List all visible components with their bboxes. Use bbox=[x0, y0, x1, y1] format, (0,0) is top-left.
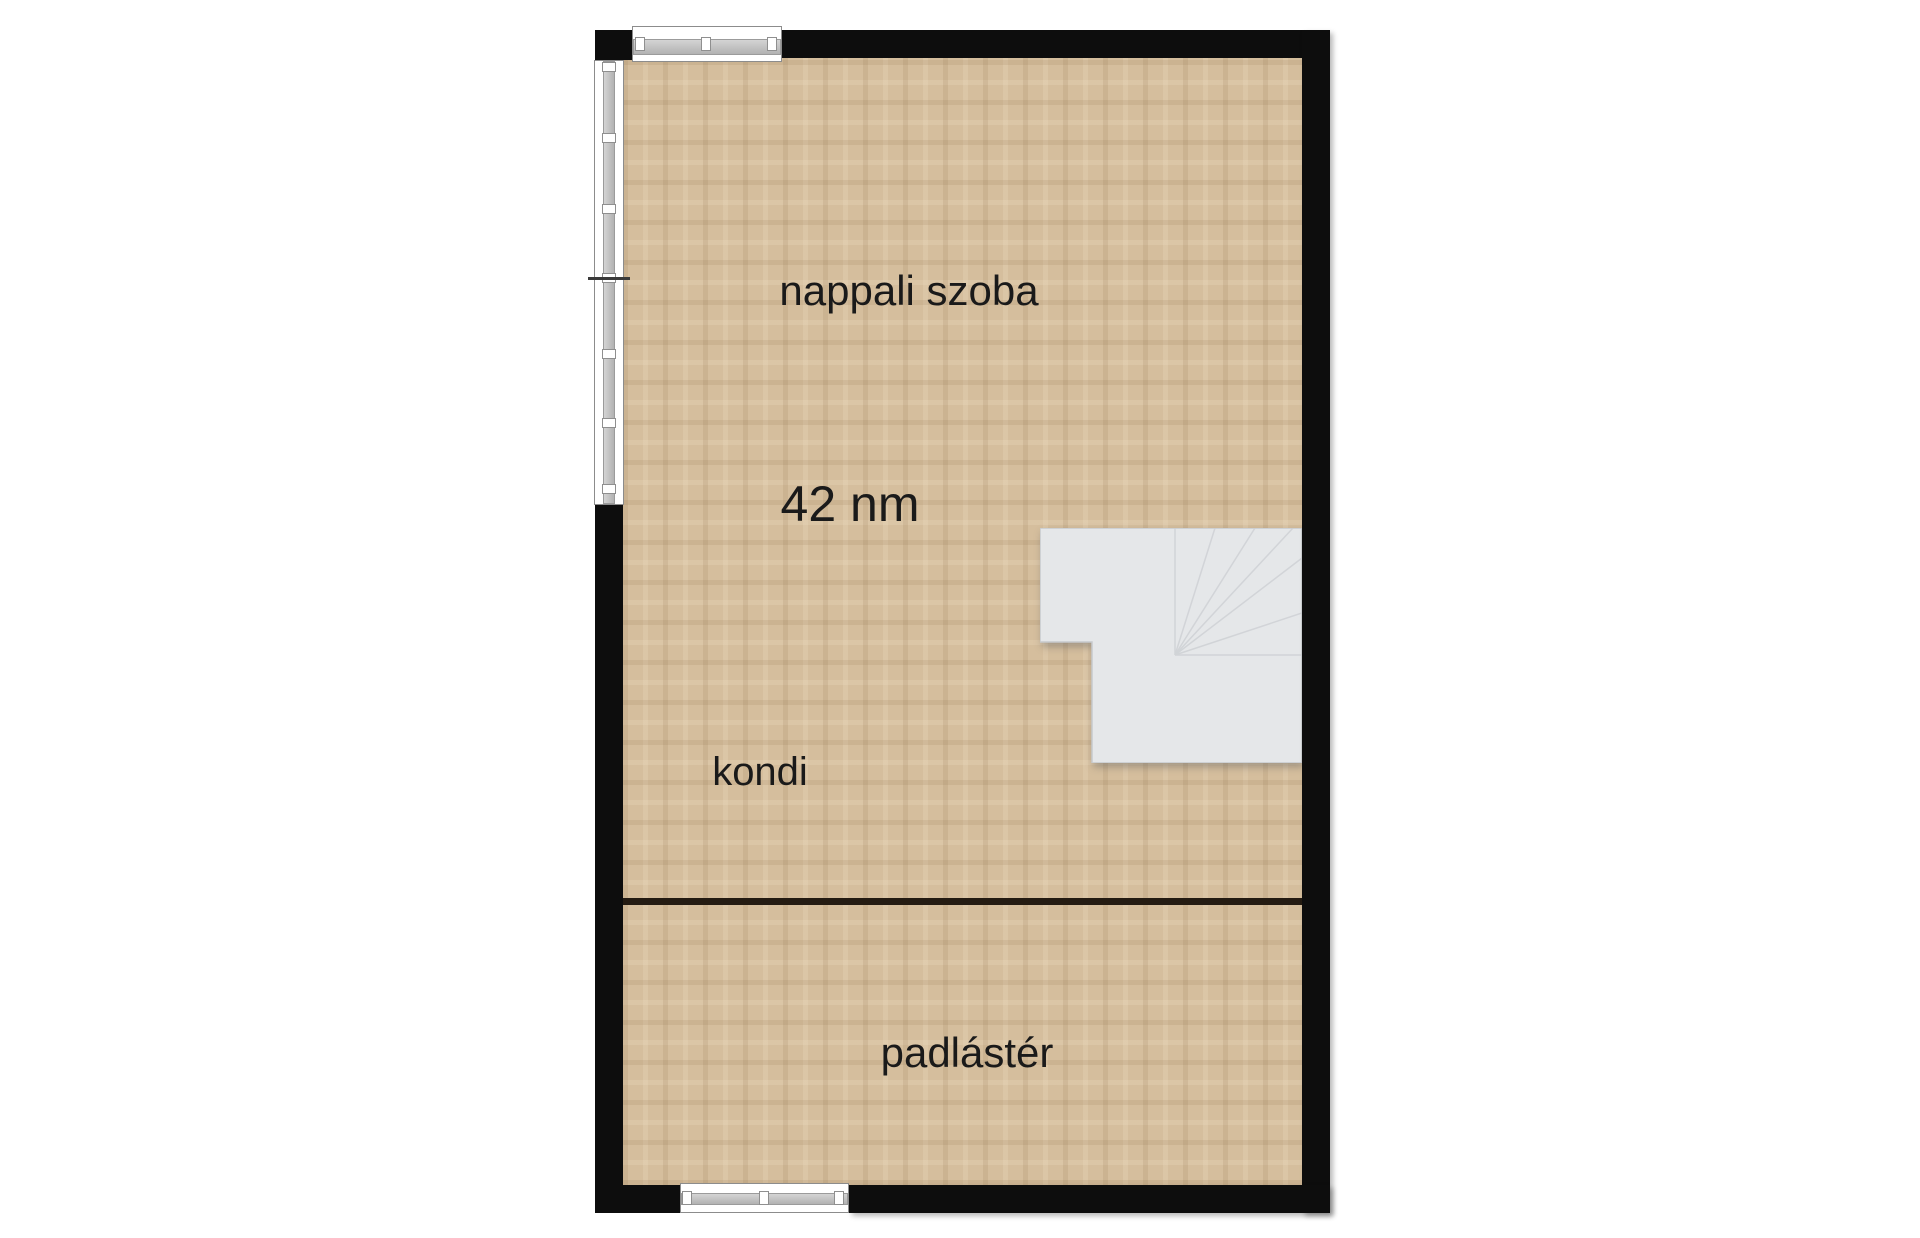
room-divider-line bbox=[623, 898, 1302, 905]
window-handle bbox=[701, 37, 711, 51]
window-left bbox=[594, 60, 624, 505]
window-handle bbox=[602, 62, 616, 72]
window-handle bbox=[635, 37, 645, 51]
wall-right bbox=[1302, 30, 1330, 1213]
window-handle bbox=[759, 1191, 769, 1205]
window-handle bbox=[602, 349, 616, 359]
window-handle bbox=[682, 1191, 692, 1205]
wall-left bbox=[595, 502, 623, 1213]
wall-top bbox=[782, 30, 1330, 58]
window-top bbox=[632, 26, 782, 62]
wall-bottom-right-segment bbox=[849, 1185, 1330, 1213]
window-handle bbox=[602, 204, 616, 214]
room-label-padlaster: padlástér bbox=[881, 1032, 1054, 1074]
window-handle bbox=[602, 133, 616, 143]
wall-bottom-left-segment bbox=[595, 1185, 680, 1213]
window-handle bbox=[767, 37, 777, 51]
room-label-kondi: kondi bbox=[712, 752, 808, 792]
window-handle bbox=[602, 484, 616, 494]
wall-corner-top-left bbox=[595, 30, 632, 60]
window-handle bbox=[602, 418, 616, 428]
window-left-junction-line bbox=[588, 277, 630, 280]
window-handle bbox=[834, 1191, 844, 1205]
staircase bbox=[1040, 528, 1302, 763]
window-bottom bbox=[680, 1183, 849, 1213]
area-label: 42 nm bbox=[781, 479, 920, 529]
room-label-nappali-szoba: nappali szoba bbox=[779, 270, 1038, 312]
floorplan-canvas: nappali szoba 42 nm kondi padlástér bbox=[0, 0, 1920, 1238]
staircase-outline bbox=[1040, 528, 1302, 763]
